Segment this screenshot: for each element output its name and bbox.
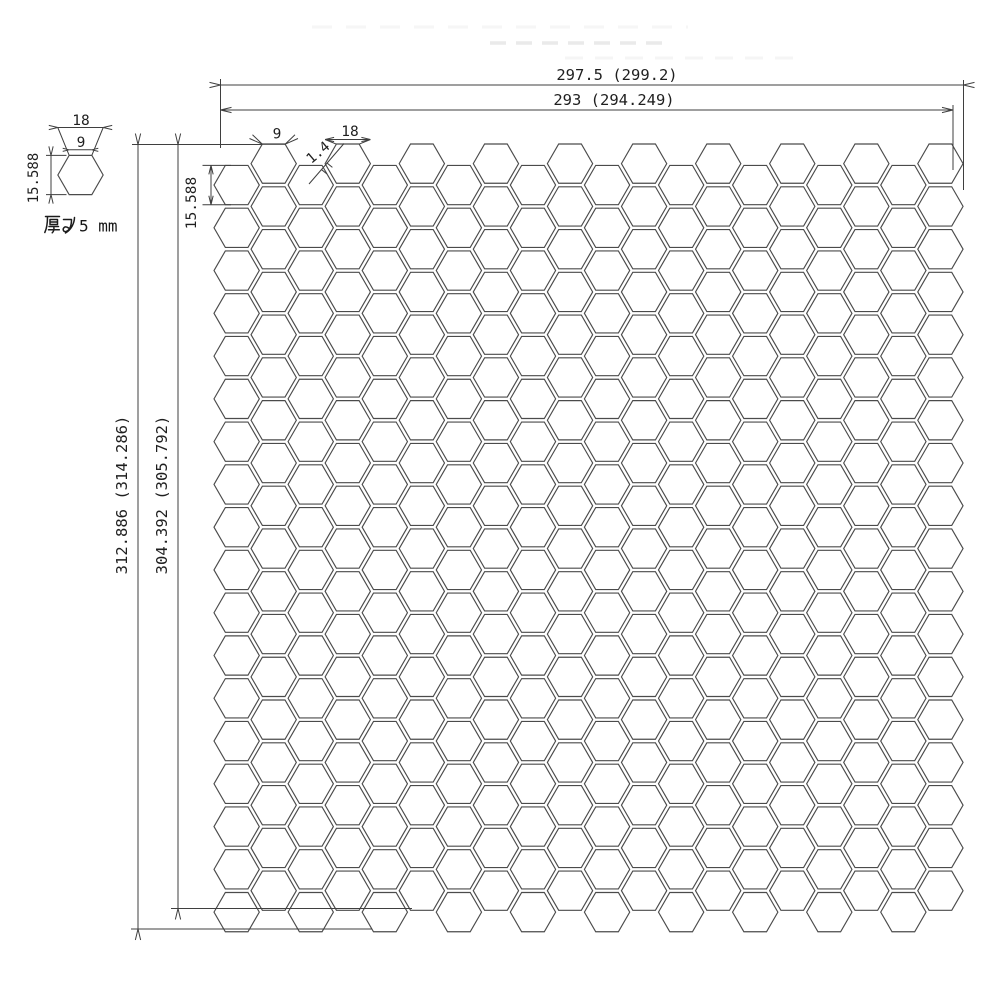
thickness-label: 5 mm — [45, 217, 118, 236]
detail-dim-top-edge: 9 — [77, 135, 86, 151]
hex-mosaic-dimension-drawing: 297.5 (299.2) 293 (294.249) 312.886 (314… — [0, 0, 1000, 1000]
dim-grid-hex-width: 18 — [341, 124, 358, 140]
dim-left-outer: 312.886 (314.286) — [113, 416, 131, 575]
dim-grid-hex-height: 15.588 — [184, 177, 200, 229]
dim-grid-joint: 1.4 — [304, 139, 334, 168]
dim-top-inner: 293 (294.249) — [553, 91, 674, 109]
detail-dim-height: 15.588 — [26, 153, 42, 204]
dim-top-outer: 297.5 (299.2) — [556, 66, 677, 84]
kanji-atsu-glyph — [45, 217, 60, 233]
hexagon-grid — [214, 144, 963, 932]
dim-grid-hex-top-edge: 9 — [273, 127, 282, 143]
thickness-value: 5 mm — [79, 217, 118, 236]
kana-mi-glyph — [63, 218, 74, 234]
detail-dim-width: 18 — [72, 113, 89, 129]
tile-sheet-drawing-page: 297.5 (299.2) 293 (294.249) 312.886 (314… — [0, 0, 1000, 1000]
detail-hexagon — [58, 155, 103, 194]
scan-artifacts — [312, 27, 798, 58]
dim-left-inner: 304.392 (305.792) — [153, 416, 171, 575]
